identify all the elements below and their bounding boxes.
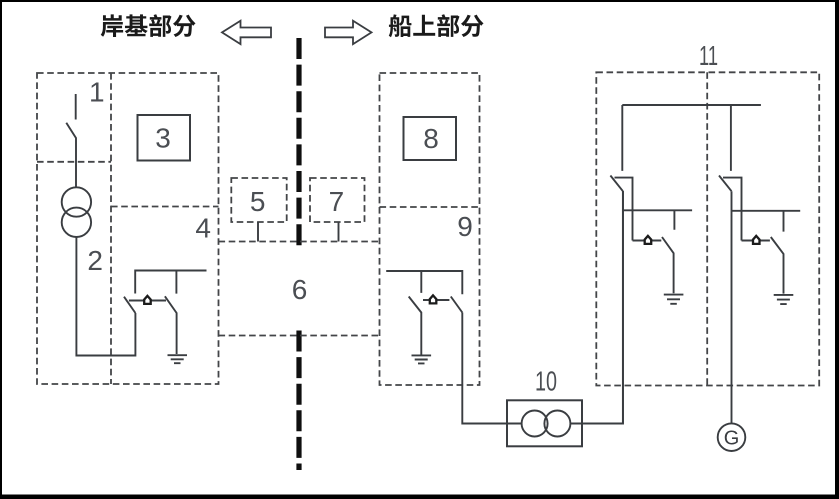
svg-text:4: 4 xyxy=(195,213,211,244)
svg-text:G: G xyxy=(724,427,740,449)
svg-text:2: 2 xyxy=(87,245,103,276)
svg-text:1: 1 xyxy=(89,77,105,108)
svg-text:3: 3 xyxy=(155,123,171,154)
svg-text:8: 8 xyxy=(423,123,439,154)
svg-text:7: 7 xyxy=(329,186,345,217)
svg-text:6: 6 xyxy=(292,274,308,305)
svg-text:10: 10 xyxy=(535,366,557,397)
svg-text:9: 9 xyxy=(457,211,473,242)
svg-text:5: 5 xyxy=(250,186,266,217)
svg-text:11: 11 xyxy=(699,40,718,71)
